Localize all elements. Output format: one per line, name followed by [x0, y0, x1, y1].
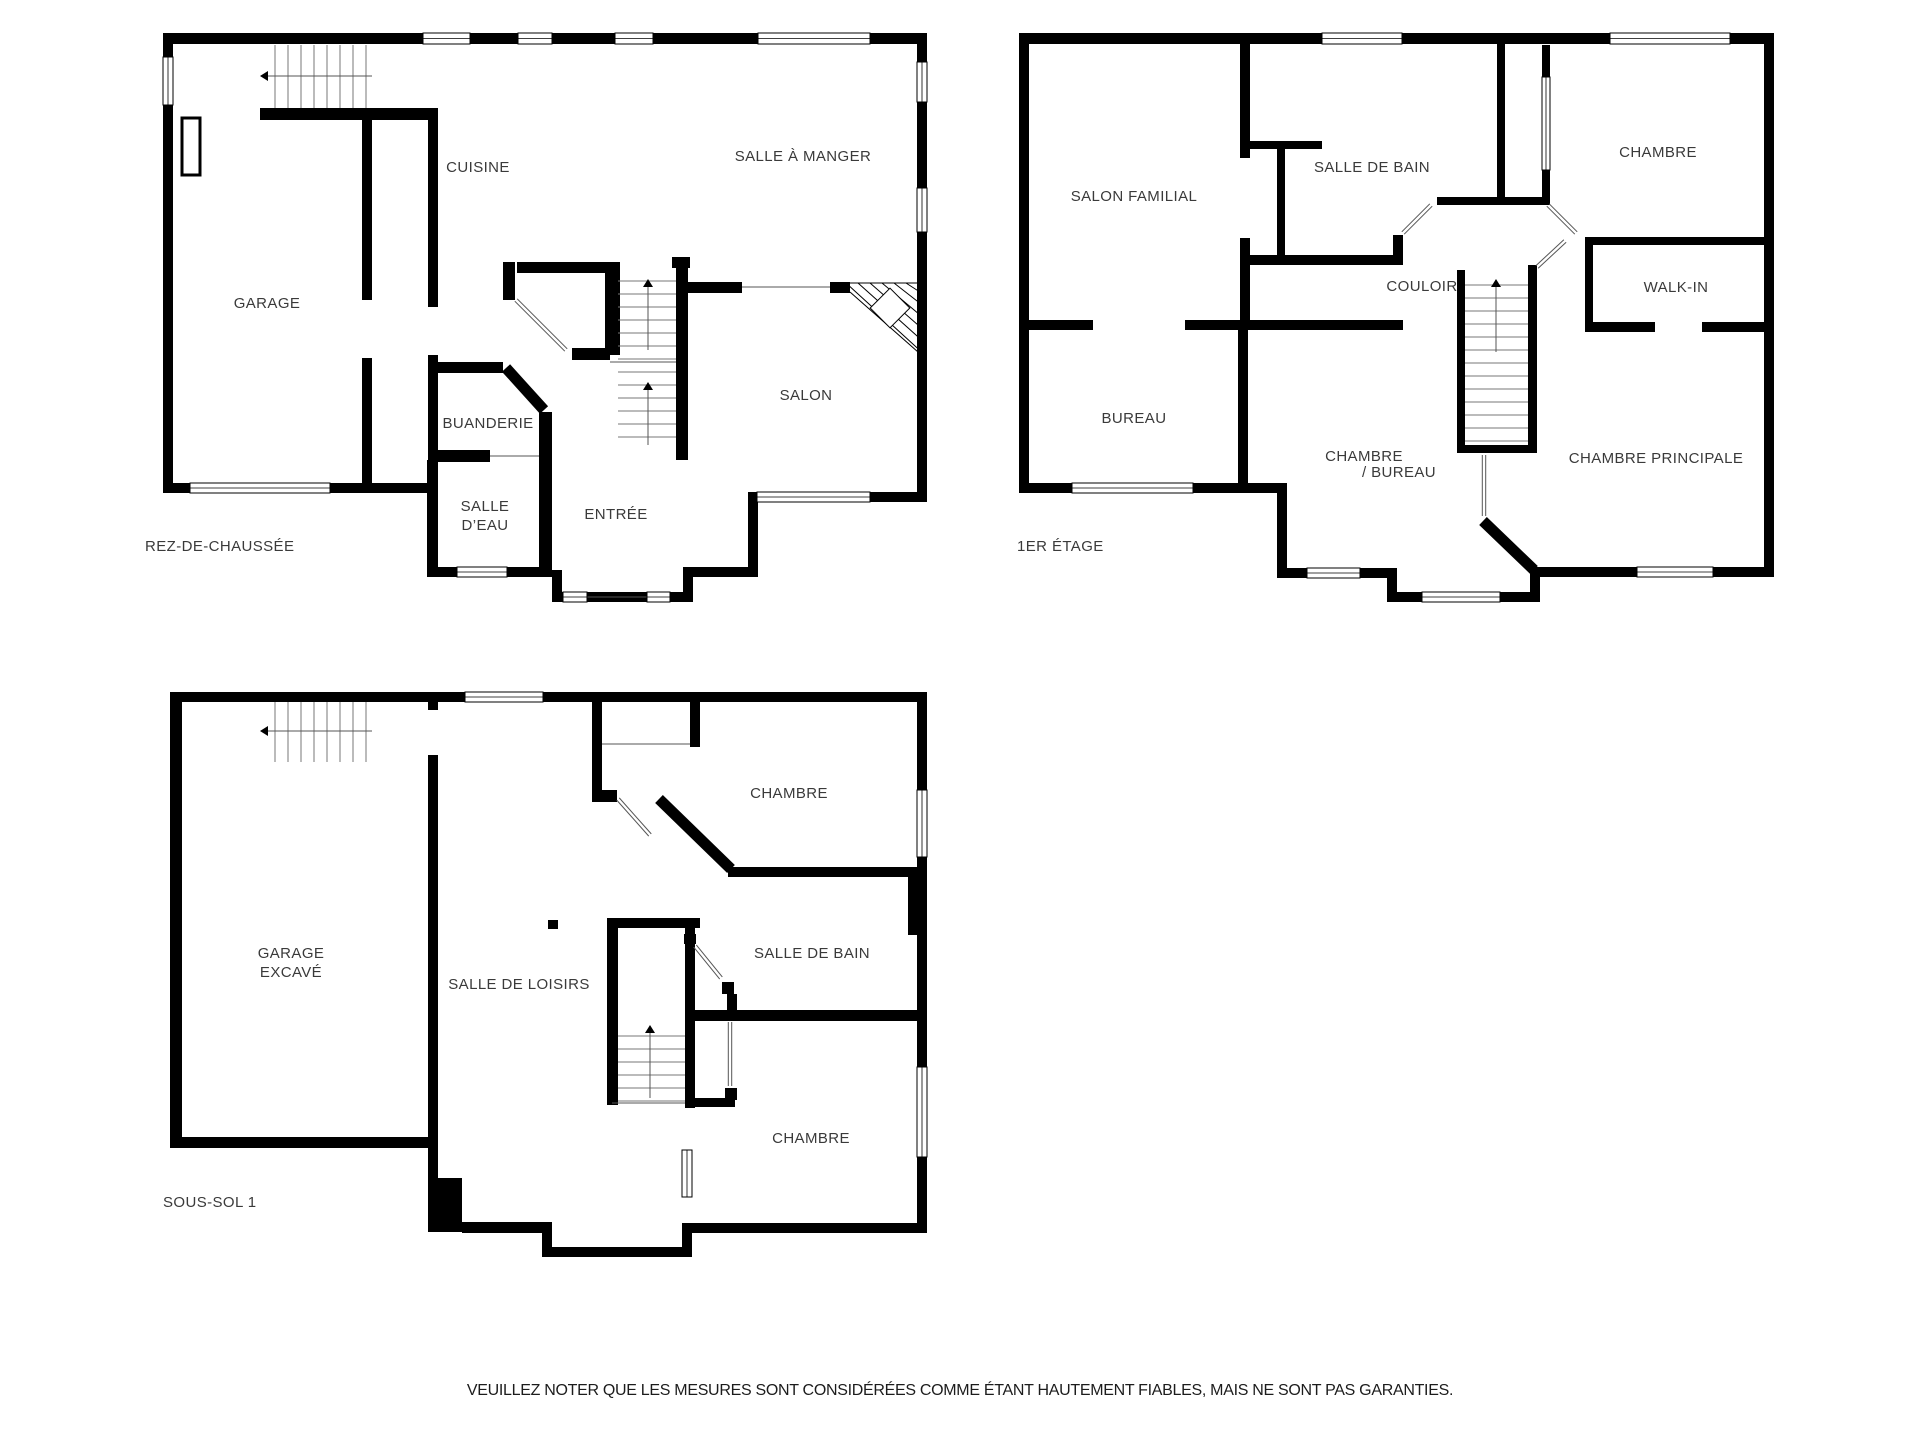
wall [607, 918, 618, 1105]
wall [722, 982, 734, 994]
window [457, 567, 507, 577]
door-opening [362, 300, 373, 358]
window [190, 483, 330, 493]
wall [517, 262, 610, 273]
room-label-garage: GARAGE [234, 295, 301, 312]
window [1322, 33, 1402, 44]
wall [542, 1247, 692, 1257]
wall-diagonal [1483, 521, 1534, 570]
wall [1277, 141, 1285, 265]
room-label-chambre-bureau: CHAMBRE [1325, 448, 1403, 465]
wall [1457, 270, 1465, 453]
wall [1185, 320, 1403, 330]
floor-plan-page: GARAGE CUISINE SALLE À MANGER BUANDERIE … [0, 0, 1920, 1440]
floor-label-1er-etage: 1ER ÉTAGE [1017, 538, 1104, 555]
room-label-bureau: BUREAU [1102, 410, 1167, 427]
wall [685, 928, 695, 1108]
window [423, 33, 470, 44]
wall [1277, 483, 1287, 578]
window [518, 33, 552, 44]
stair-direction-arrow [643, 382, 653, 445]
wall [1497, 33, 1505, 202]
wall [437, 450, 490, 462]
room-label-chambre-ss-bas: CHAMBRE [772, 1130, 850, 1147]
wall [1387, 568, 1397, 602]
floor-plan-basement: GARAGE EXCAVÉ SALLE DE LOISIRS CHAMBRE S… [163, 692, 927, 1257]
room-label-cuisine: CUISINE [446, 159, 510, 176]
floor-plan-drawing: GARAGE CUISINE SALLE À MANGER BUANDERIE … [0, 0, 1920, 1440]
ground-floor-walls [163, 33, 927, 602]
wall [572, 348, 610, 360]
wall [1457, 445, 1537, 453]
wall [682, 1233, 692, 1257]
wall [503, 262, 515, 300]
door-swing [1547, 204, 1577, 234]
wall [683, 567, 758, 577]
room-label-chambre-principale: CHAMBRE PRINCIPALE [1569, 450, 1743, 467]
wall-diagonal [506, 368, 544, 410]
window [1610, 33, 1730, 44]
wall [1240, 238, 1250, 330]
window [1422, 592, 1500, 602]
room-label-salle-de-loisirs: SALLE DE LOISIRS [448, 976, 589, 993]
wall [605, 262, 620, 355]
floor-plan-ground: GARAGE CUISINE SALLE À MANGER BUANDERIE … [145, 33, 927, 602]
wall [170, 1137, 438, 1148]
room-label-garage-excave-2: EXCAVÉ [260, 964, 322, 981]
wall [1528, 265, 1537, 453]
room-label-entree: ENTRÉE [584, 506, 647, 523]
corner-fireplace [846, 283, 926, 356]
room-label-salle-deau: SALLE [461, 498, 510, 515]
disclaimer-text: VEUILLEZ NOTER QUE LES MESURES SONT CONS… [0, 1382, 1920, 1400]
window [917, 62, 927, 102]
wall [1238, 330, 1248, 493]
stair-direction-arrow [260, 71, 372, 81]
wall [428, 108, 438, 497]
wall [592, 692, 602, 742]
room-label-salon: SALON [780, 387, 833, 404]
window [615, 33, 653, 44]
wall [1240, 33, 1250, 158]
wall [548, 920, 558, 929]
floor-plan-first: SALON FAMILIAL SALLE DE BAIN CHAMBRE COU… [1017, 33, 1774, 602]
wall [1585, 237, 1774, 245]
wall [688, 1010, 927, 1021]
wall [728, 867, 927, 877]
wall [428, 702, 438, 1232]
wall [428, 1178, 462, 1232]
window [917, 1067, 927, 1157]
window [758, 33, 870, 44]
room-label-buanderie: BUANDERIE [442, 415, 533, 432]
window [1637, 567, 1713, 577]
first-floor-walls [1019, 33, 1774, 602]
room-label-salon-familial: SALON FAMILIAL [1071, 188, 1197, 205]
door-swing [728, 1022, 731, 1086]
window [163, 57, 173, 105]
door-swing [1482, 455, 1485, 516]
wall [1019, 33, 1029, 493]
room-label-chambre-ss-haut: CHAMBRE [750, 785, 828, 802]
wall [170, 692, 927, 702]
wall [602, 790, 617, 802]
wall [690, 692, 700, 747]
door-opening [428, 307, 439, 355]
window [1542, 77, 1550, 170]
wall [908, 872, 920, 935]
door-swing [515, 299, 567, 351]
wall [1437, 197, 1550, 205]
wall [727, 994, 737, 1016]
window [647, 592, 670, 602]
room-label-salle-a-manger: SALLE À MANGER [735, 148, 871, 165]
window [917, 188, 927, 232]
wall [917, 33, 927, 502]
wall [1247, 255, 1403, 265]
wall [170, 692, 182, 1148]
room-label-garage-excave: GARAGE [258, 945, 325, 962]
window [757, 492, 870, 502]
door-opening [428, 710, 439, 755]
room-label-salle-deau-2: D’EAU [461, 517, 508, 534]
window [1072, 483, 1193, 493]
wall [607, 918, 700, 928]
wall [1393, 235, 1403, 265]
wall [1019, 320, 1093, 330]
wall [1542, 45, 1550, 77]
room-label-salle-de-bain-1er: SALLE DE BAIN [1314, 159, 1430, 176]
wall [748, 497, 758, 572]
room-label-walk-in: WALK-IN [1644, 279, 1709, 296]
wall [539, 412, 552, 572]
wall-diagonal [659, 799, 731, 869]
wall [672, 257, 690, 268]
wall [552, 570, 562, 602]
room-label-couloir: COULOIR [1386, 278, 1457, 295]
floor-label-rez-de-chaussee: REZ-DE-CHAUSSÉE [145, 538, 294, 555]
wall [1585, 322, 1655, 332]
chimney [182, 118, 200, 175]
floor-label-sous-sol: SOUS-SOL 1 [163, 1194, 256, 1211]
window [917, 790, 927, 857]
room-label-chambre-bureau-2: / BUREAU [1362, 464, 1436, 481]
wall [462, 1222, 550, 1233]
staircase [618, 1036, 685, 1101]
door-swing [1402, 204, 1432, 234]
wall [1585, 245, 1593, 322]
stair-direction-arrow [1491, 279, 1501, 352]
room-label-salle-de-bain-ss: SALLE DE BAIN [754, 945, 870, 962]
door-swing [617, 798, 652, 836]
stair-direction-arrow [643, 279, 653, 350]
staircase [275, 702, 366, 762]
wall [260, 108, 438, 120]
window [563, 592, 587, 602]
window [1307, 568, 1360, 578]
door-swing [1536, 240, 1566, 268]
wall [682, 1223, 927, 1233]
staircase [618, 281, 676, 437]
room-label-chambre-1er: CHAMBRE [1619, 144, 1697, 161]
window [465, 692, 543, 702]
wall [438, 362, 503, 373]
wall [1764, 33, 1774, 577]
stair-direction-arrow [260, 726, 372, 736]
wall [685, 282, 742, 293]
door-swing [694, 945, 723, 979]
wall [1702, 322, 1774, 332]
window [682, 1150, 692, 1197]
wall [592, 742, 602, 802]
